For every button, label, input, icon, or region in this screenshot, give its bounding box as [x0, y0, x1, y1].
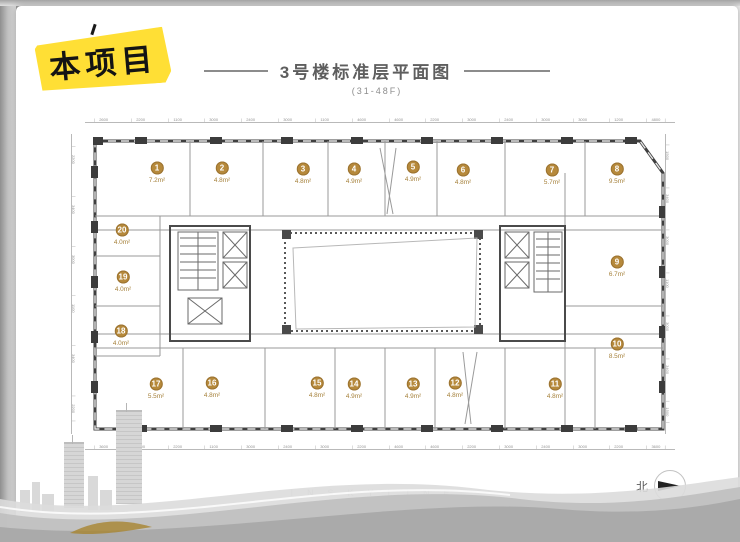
- unit-area: 7.2m²: [149, 176, 165, 183]
- unit-number-badge: 13: [406, 378, 419, 391]
- dimension-value: 3000: [278, 119, 296, 123]
- floor-range: (31-48F): [16, 86, 738, 96]
- unit-area: 4.8m²: [214, 176, 230, 183]
- unit-area: 4.8m²: [309, 391, 325, 398]
- dimension-value: 3000: [205, 119, 223, 123]
- dimension-value: 2200: [426, 119, 444, 123]
- unit-label: 108.5m²: [607, 338, 627, 361]
- dimension-value: 1100: [666, 273, 670, 294]
- dimension-value: 3400: [666, 358, 670, 379]
- unit-number-badge: 6: [456, 164, 469, 177]
- dimension-value: 1100: [72, 296, 76, 321]
- unit-label: 184.0m²: [111, 325, 131, 348]
- dims-right: 1500340030001100300034001500: [665, 134, 673, 434]
- unit-label: 34.8m²: [293, 163, 313, 186]
- unit-label: 89.5m²: [607, 163, 627, 186]
- decorative-waves: [0, 447, 740, 542]
- unit-label: 54.9m²: [403, 161, 423, 184]
- dimension-value: 4600: [352, 119, 370, 123]
- unit-number-badge: 17: [149, 378, 162, 391]
- dimension-value: 3000: [666, 316, 670, 337]
- title-line-right: [464, 70, 550, 72]
- dimension-value: 3000: [72, 246, 76, 271]
- unit-area: 4.9m²: [405, 175, 421, 182]
- unit-area: 4.0m²: [113, 339, 129, 346]
- unit-label: 204.0m²: [112, 224, 132, 247]
- unit-label: 144.9m²: [344, 378, 364, 401]
- unit-number-badge: 12: [448, 377, 461, 390]
- unit-label: 164.8m²: [202, 377, 222, 400]
- unit-area: 6.7m²: [609, 270, 625, 277]
- unit-number-badge: 14: [347, 378, 360, 391]
- page-title: 3号楼标准层平面图: [280, 58, 452, 83]
- dimension-value: 1100: [168, 119, 186, 123]
- unit-number-badge: 4: [347, 163, 360, 176]
- badge-tick-mark: [90, 24, 96, 35]
- unit-number-badge: 5: [406, 161, 419, 174]
- unit-number-badge: 20: [115, 224, 128, 237]
- unit-number-badge: 8: [610, 163, 623, 176]
- unit-label: 64.8m²: [453, 164, 473, 187]
- unit-number-badge: 10: [610, 338, 623, 351]
- unit-label: 194.0m²: [113, 271, 133, 294]
- dimension-value: 2200: [72, 146, 76, 171]
- unit-label: 17.2m²: [147, 162, 167, 185]
- unit-number-badge: 16: [205, 377, 218, 390]
- dimension-value: 3000: [536, 119, 554, 123]
- dimension-value: 1500: [666, 401, 670, 423]
- dimension-value: 2600: [94, 119, 112, 123]
- dimension-value: 3400: [72, 196, 76, 221]
- dims-left: 220034003000110034002200: [71, 134, 79, 434]
- dimension-value: 3400: [72, 346, 76, 371]
- unit-area: 9.5m²: [609, 177, 625, 184]
- dimension-value: 3400: [666, 187, 670, 208]
- unit-label: 154.8m²: [307, 377, 327, 400]
- unit-area: 5.7m²: [544, 178, 560, 185]
- unit-label: 44.9m²: [344, 163, 364, 186]
- unit-number-badge: 9: [610, 256, 623, 269]
- dimension-value: 1100: [315, 119, 333, 123]
- dimension-value: 2400: [241, 119, 259, 123]
- unit-label: 134.9m²: [403, 378, 423, 401]
- title-line-left: [204, 70, 268, 72]
- dimension-value: 2200: [131, 119, 149, 123]
- unit-area: 4.8m²: [204, 391, 220, 398]
- unit-area: 4.0m²: [115, 285, 131, 292]
- unit-area: 4.9m²: [346, 392, 362, 399]
- dimension-value: 1500: [666, 145, 670, 166]
- unit-label: 96.7m²: [607, 256, 627, 279]
- unit-label: 75.7m²: [542, 164, 562, 187]
- unit-label: 124.8m²: [445, 377, 465, 400]
- unit-area: 4.9m²: [405, 392, 421, 399]
- dimension-value: 2400: [499, 119, 517, 123]
- unit-area: 4.8m²: [295, 177, 311, 184]
- unit-number-badge: 3: [296, 163, 309, 176]
- unit-number-badge: 19: [116, 271, 129, 284]
- unit-number-badge: 7: [545, 164, 558, 177]
- project-badge-label: 本项目: [47, 33, 159, 87]
- unit-number-badge: 15: [310, 377, 323, 390]
- page: 本项目 3号楼标准层平面图 (31-48F): [0, 0, 740, 542]
- dims-top: 2600220011003000240030001100460046002200…: [85, 115, 675, 123]
- unit-number-badge: 2: [215, 162, 228, 175]
- unit-number-badge: 18: [114, 325, 127, 338]
- unit-label: 175.5m²: [146, 378, 166, 401]
- dimension-value: 4600: [389, 119, 407, 123]
- unit-area: 4.8m²: [547, 392, 563, 399]
- unit-area: 4.9m²: [346, 177, 362, 184]
- unit-number-badge: 1: [150, 162, 163, 175]
- dimension-value: 1200: [610, 119, 628, 123]
- unit-area: 5.5m²: [148, 392, 164, 399]
- dimension-value: 3000: [666, 230, 670, 251]
- dimension-value: 4800: [647, 119, 666, 123]
- floorplan-drawing: [85, 126, 675, 466]
- unit-area: 8.5m²: [609, 352, 625, 359]
- unit-area: 4.8m²: [447, 391, 463, 398]
- dimension-value: 3000: [573, 119, 591, 123]
- unit-number-badge: 11: [548, 378, 561, 391]
- unit-area: 4.0m²: [114, 238, 130, 245]
- unit-area: 4.8m²: [455, 178, 471, 185]
- dimension-value: 3000: [462, 119, 480, 123]
- unit-label: 24.8m²: [212, 162, 232, 185]
- unit-label: 114.8m²: [545, 378, 565, 401]
